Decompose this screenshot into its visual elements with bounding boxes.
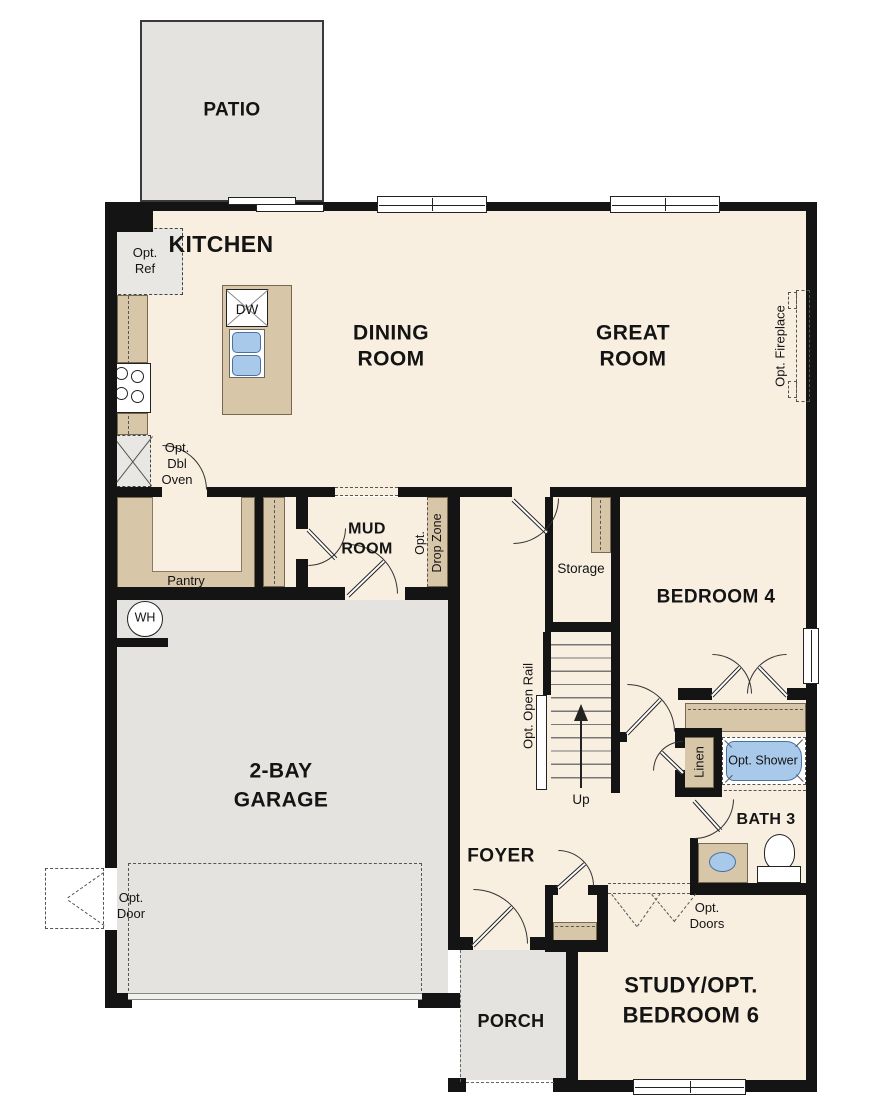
label-linen: Linen [692, 746, 707, 778]
wall [530, 937, 545, 950]
window [803, 628, 819, 684]
label-line: Opt. [117, 890, 145, 906]
wall [405, 587, 460, 600]
label-line: MUD [341, 519, 392, 539]
label-line: ROOM [353, 346, 429, 372]
label-line: Ref [133, 261, 158, 277]
window-glass-line [635, 1087, 744, 1088]
kitchen-counter [117, 413, 148, 435]
label-line: ROOM [341, 539, 392, 559]
wall [105, 587, 345, 600]
label-opt-drop-zone-opt: Opt. [413, 531, 427, 555]
porch-edge-dashed [460, 950, 461, 1082]
wall [296, 559, 308, 587]
label-line: BEDROOM 6 [623, 1000, 760, 1030]
label-opt-dbl-oven: Opt.DblOven [161, 440, 192, 488]
label-patio: PATIO [203, 98, 260, 121]
kitchen-sink-bowl [232, 332, 261, 353]
label-line: Opt. [161, 440, 192, 456]
label-bedroom4: BEDROOM 4 [657, 585, 776, 608]
wall [448, 1078, 466, 1092]
bedroom4-closet-rod [688, 709, 803, 710]
opening [512, 487, 550, 497]
storage-shelf-rod [600, 500, 601, 550]
foyer-closet-rod [555, 926, 595, 927]
label-line: GARAGE [234, 786, 329, 815]
window [610, 196, 720, 213]
label-line: GREAT [596, 320, 670, 346]
label-up: Up [572, 792, 589, 808]
label-line: Opt. [690, 900, 725, 916]
opt-fireplace-return [788, 381, 797, 398]
wall [714, 728, 722, 797]
wall [255, 497, 263, 587]
up-arrow-shaft [580, 720, 582, 788]
vanity-sink [709, 852, 736, 872]
label-opt-drop-zone: Drop Zone [430, 513, 444, 572]
opt-fireplace-return [788, 292, 797, 309]
sliding-door-panel [256, 204, 324, 212]
label-study: STUDY/OPT.BEDROOM 6 [623, 970, 760, 1029]
label-opt-shower: Opt. Shower [728, 753, 797, 768]
wall [690, 838, 698, 887]
toilet-tank [757, 866, 801, 883]
opt-doors-opening [608, 883, 690, 894]
wall [105, 202, 117, 868]
label-opt-ref: Opt.Ref [133, 245, 158, 277]
wall [553, 1078, 566, 1092]
opt-fireplace-box [796, 290, 810, 402]
wall [588, 885, 597, 895]
label-opt-open-rail: Opt. Open Rail [521, 663, 536, 749]
label-mud-room: MUDROOM [341, 519, 392, 558]
cased-opening-dashed [335, 487, 398, 496]
wall [105, 638, 168, 647]
window-glass-line [811, 630, 812, 682]
label-bath3: BATH 3 [737, 810, 796, 830]
label-line: STUDY/OPT. [623, 970, 760, 1000]
label-line: ROOM [596, 346, 670, 372]
wall [448, 937, 473, 950]
window-glass-line [612, 205, 718, 206]
label-opt-doors: Opt.Doors [690, 900, 725, 932]
wall [566, 948, 578, 1092]
wall [207, 487, 335, 497]
wall [418, 993, 460, 1008]
label-line: DINING [353, 320, 429, 346]
label-opt-door: Opt.Door [117, 890, 145, 922]
opt-shower-edge [714, 790, 806, 791]
label-line: Opt. [133, 245, 158, 261]
wall [105, 487, 162, 497]
wall [611, 732, 627, 742]
label-dw: DW [236, 302, 259, 318]
window [377, 196, 487, 213]
wall [550, 487, 806, 497]
label-kitchen: KITCHEN [168, 230, 273, 258]
opt-open-rail-symbol [536, 695, 547, 790]
kitchen-sink-bowl [232, 355, 261, 376]
kitchen-counter [117, 295, 148, 363]
foyer-closet-shelf [553, 922, 597, 942]
garage-door-track [128, 863, 422, 996]
opening [627, 732, 675, 742]
wall [678, 688, 712, 700]
wall [543, 632, 551, 695]
wall [296, 497, 308, 529]
toilet-bowl [764, 834, 795, 870]
pantry-floor [152, 497, 242, 572]
wall [597, 885, 608, 948]
label-wh: WH [135, 610, 156, 625]
label-line: 2-BAY [234, 757, 329, 786]
wall [448, 497, 460, 950]
burner [131, 370, 144, 383]
label-line: Dbl [161, 456, 192, 472]
storage-shelf [591, 497, 611, 553]
label-porch: PORCH [477, 1011, 544, 1033]
wall [545, 622, 620, 632]
porch-edge-dashed [466, 1082, 554, 1083]
label-line: Doors [690, 916, 725, 932]
wall [398, 487, 512, 497]
garage-door-sill [128, 993, 422, 1000]
window [633, 1079, 746, 1095]
label-pantry: Pantry [167, 573, 205, 589]
label-line: Oven [161, 472, 192, 488]
label-foyer: FOYER [467, 844, 534, 867]
burner [131, 390, 144, 403]
opening [296, 529, 308, 559]
wall [690, 883, 806, 895]
wall [787, 688, 806, 700]
label-opt-fireplace: Opt. Fireplace [773, 305, 788, 387]
floor-plan: PATIO KITCHEN DININGROOM GREATROOM Opt.R… [0, 0, 870, 1110]
wall [611, 497, 620, 793]
window-glass-line [379, 205, 485, 206]
label-garage: 2-BAYGARAGE [234, 757, 329, 816]
label-dining-room: DININGROOM [353, 320, 429, 371]
label-line: Door [117, 906, 145, 922]
mud-closet-rod [274, 500, 275, 584]
label-great-room: GREATROOM [596, 320, 670, 371]
up-arrow-head [574, 704, 588, 721]
opt-door-opening [105, 868, 117, 930]
label-storage: Storage [557, 561, 604, 577]
